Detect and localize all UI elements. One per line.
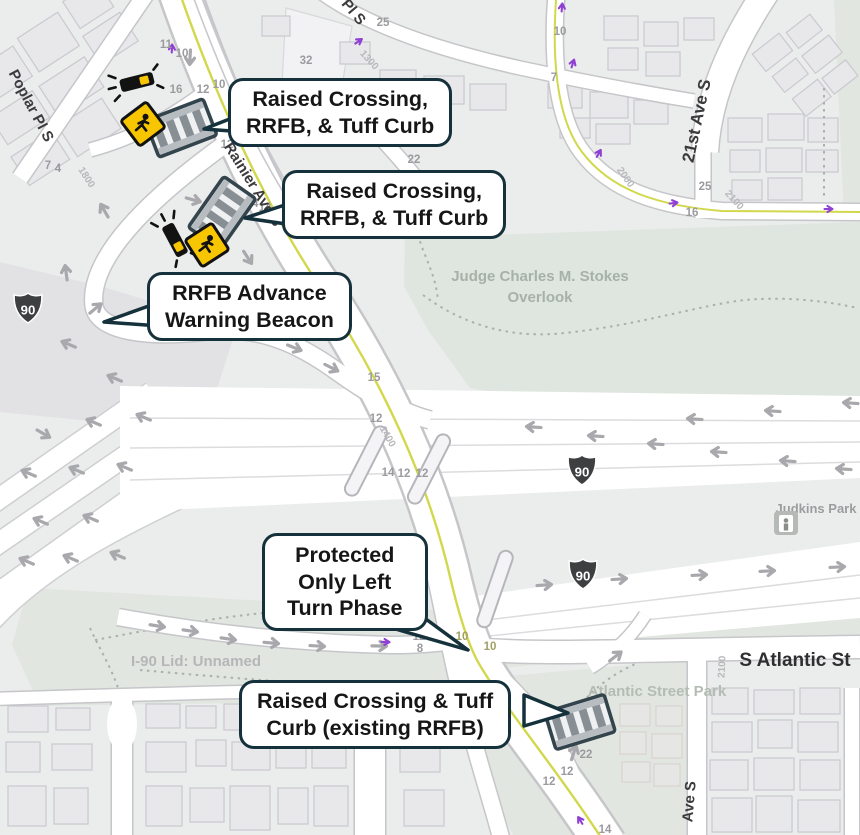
svg-text:7: 7 bbox=[45, 160, 51, 172]
park-label-stokes-overlook: Judge Charles M. Stokes bbox=[451, 268, 629, 285]
svg-text:8: 8 bbox=[417, 643, 424, 655]
svg-text:14: 14 bbox=[599, 824, 612, 835]
park-label-i90-lid: I-90 Lid: Unnamed bbox=[131, 653, 261, 670]
svg-text:4: 4 bbox=[55, 163, 62, 175]
svg-text:12: 12 bbox=[416, 468, 429, 480]
svg-text:10: 10 bbox=[484, 641, 497, 653]
svg-text:12: 12 bbox=[197, 84, 210, 96]
callout-rrfb-advance-warning: RRFB Advance Warning Beacon bbox=[147, 272, 352, 341]
street-label-ave-s: Ave S bbox=[679, 780, 700, 822]
svg-text:14: 14 bbox=[382, 467, 395, 479]
callout-raised-crossing-2: Raised Crossing, RRFB, & Tuff Curb bbox=[282, 170, 506, 239]
callout-raised-crossing-1: Raised Crossing, RRFB, & Tuff Curb bbox=[228, 78, 452, 147]
light-rail-station-icon bbox=[774, 511, 798, 535]
svg-text:11: 11 bbox=[160, 39, 173, 51]
svg-text:12: 12 bbox=[398, 468, 411, 480]
park-label-atlantic-street-park: Atlantic Street Park bbox=[588, 683, 727, 700]
svg-text:10: 10 bbox=[176, 48, 189, 60]
svg-text:22: 22 bbox=[580, 749, 593, 761]
callout-raised-crossing-existing: Raised Crossing & Tuff Curb (existing RR… bbox=[239, 680, 511, 749]
svg-text:90: 90 bbox=[21, 302, 36, 317]
svg-text:2100: 2100 bbox=[716, 655, 728, 678]
svg-text:16: 16 bbox=[686, 207, 699, 219]
svg-text:90: 90 bbox=[575, 464, 590, 479]
street-label-s-atlantic-st: S Atlantic St bbox=[739, 650, 851, 671]
svg-text:32: 32 bbox=[300, 55, 313, 67]
svg-text:12: 12 bbox=[561, 766, 574, 778]
svg-text:12: 12 bbox=[543, 776, 556, 788]
svg-text:25: 25 bbox=[377, 17, 390, 29]
svg-text:10: 10 bbox=[554, 26, 567, 38]
svg-text:25: 25 bbox=[699, 181, 712, 193]
svg-text:90: 90 bbox=[576, 568, 591, 583]
svg-text:10: 10 bbox=[213, 79, 226, 91]
svg-text:22: 22 bbox=[408, 154, 421, 166]
callout-protected-left-turn: Protected Only Left Turn Phase bbox=[262, 533, 428, 631]
svg-text:15: 15 bbox=[368, 372, 381, 384]
svg-text:16: 16 bbox=[170, 84, 183, 96]
map-canvas[interactable]: 1110 1612 1012 74 1414 2225 3215 1214 12… bbox=[0, 0, 860, 835]
svg-text:7: 7 bbox=[551, 72, 557, 84]
svg-text:12: 12 bbox=[370, 413, 383, 425]
svg-text:Overlook: Overlook bbox=[507, 289, 573, 306]
